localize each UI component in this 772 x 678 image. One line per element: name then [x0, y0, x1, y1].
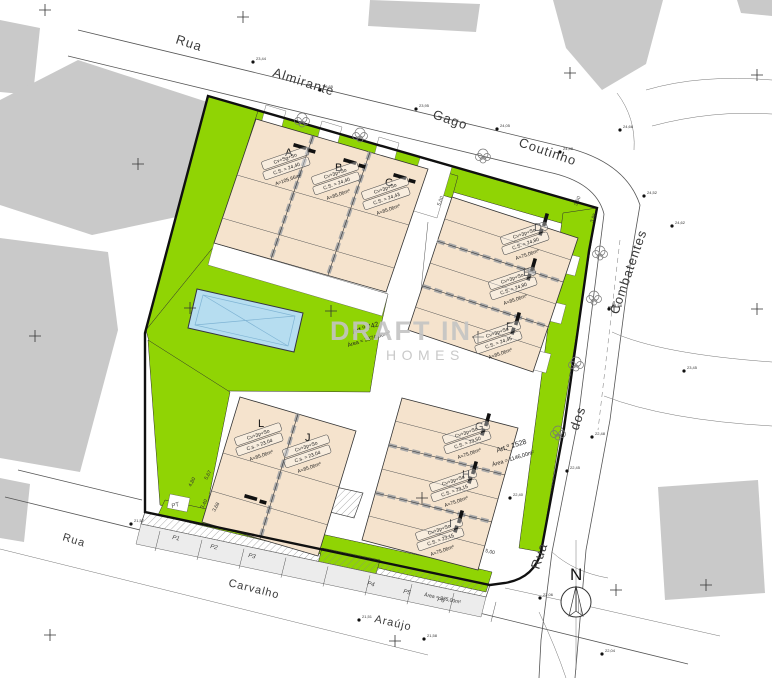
spot-elevation-marker [670, 224, 673, 227]
spot-elevation-value: 21,51 [362, 614, 373, 619]
spot-elevation-marker [600, 652, 603, 655]
spot-elevation-marker [251, 60, 254, 63]
spot-elevation-value: 22,48 [595, 431, 606, 436]
watermark-brand: DRAFT IN [330, 316, 472, 346]
spot-elevation-marker [618, 128, 621, 131]
spot-elevation-marker [682, 369, 685, 372]
spot-elevation-marker [414, 107, 417, 110]
spot-elevation-value: 22,06 [543, 592, 554, 597]
spot-elevation-value: 24,66 [623, 124, 634, 129]
spot-elevation-value: 24,05 [500, 123, 511, 128]
watermark-sub: HOMES [386, 347, 465, 363]
spot-elevation-marker [538, 596, 541, 599]
spot-elevation-marker [590, 435, 593, 438]
spot-elevation-value: 21,58 [427, 633, 438, 638]
spot-elevation-value: 21,57 [134, 518, 145, 523]
spot-elevation-marker [508, 496, 511, 499]
spot-elevation-marker [495, 127, 498, 130]
spot-elevation-marker [357, 618, 360, 621]
spot-elevation-value: 23,95 [419, 103, 430, 108]
site-plan-drawing: 23,4423,6523,9524,0524,4824,6624,5224,62… [0, 0, 772, 678]
spot-elevation-value: 23,45 [687, 365, 698, 370]
spot-elevation-marker [422, 637, 425, 640]
spot-elevation-value: 23,44 [256, 56, 267, 61]
context-building [658, 480, 765, 600]
spot-elevation-marker [565, 469, 568, 472]
site-plan-page: 23,4423,6523,9524,0524,4824,6624,5224,62… [0, 0, 772, 678]
north-label: N [570, 565, 582, 584]
spot-elevation-value: 22,45 [570, 465, 581, 470]
spot-elevation-value: 22,04 [605, 648, 616, 653]
spot-elevation-value: 22,40 [513, 492, 524, 497]
spot-elevation-marker [129, 522, 132, 525]
spot-elevation-value: 24,52 [647, 190, 658, 195]
spot-elevation-value: 24,62 [675, 220, 686, 225]
spot-elevation-marker [642, 194, 645, 197]
